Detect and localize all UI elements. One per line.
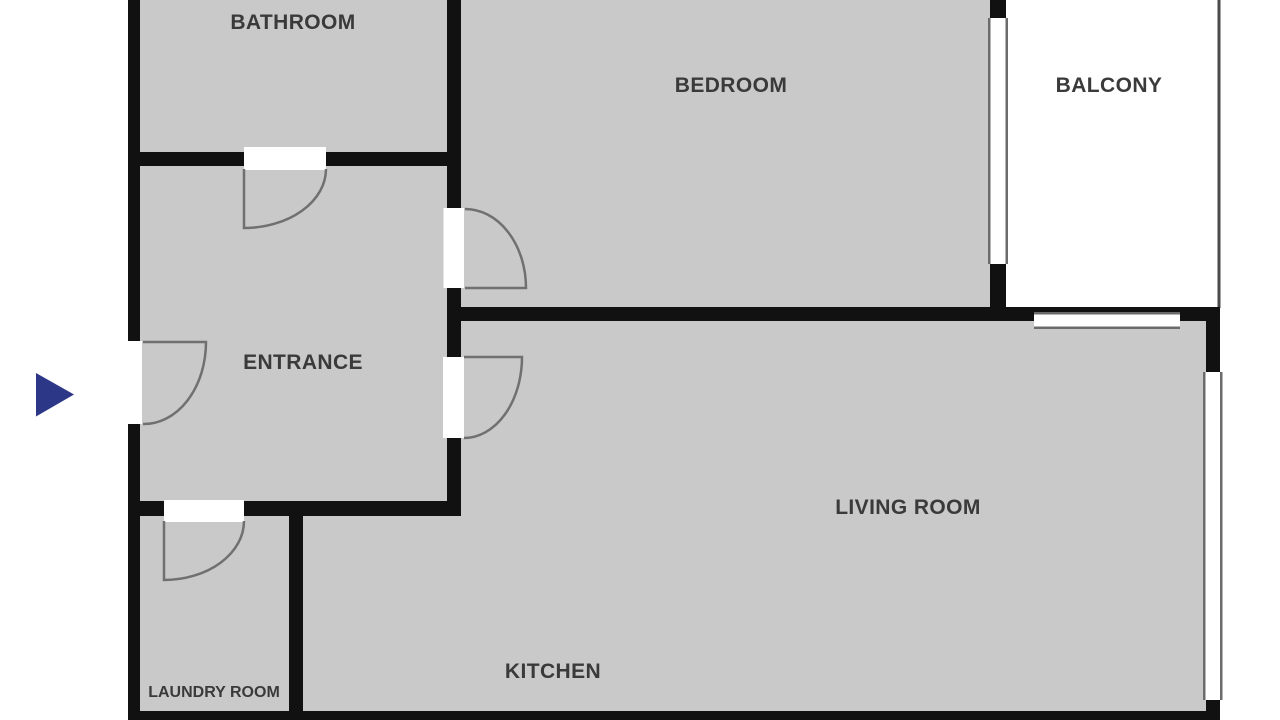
svg-text:BALCONY: BALCONY bbox=[1056, 74, 1163, 97]
svg-text:LIVING ROOM: LIVING ROOM bbox=[835, 496, 981, 519]
svg-text:BEDROOM: BEDROOM bbox=[675, 74, 787, 97]
svg-text:ENTRANCE: ENTRANCE bbox=[243, 351, 363, 374]
svg-text:LAUNDRY ROOM: LAUNDRY ROOM bbox=[148, 684, 280, 701]
svg-text:BATHROOM: BATHROOM bbox=[230, 11, 355, 34]
svg-text:KITCHEN: KITCHEN bbox=[505, 660, 601, 683]
